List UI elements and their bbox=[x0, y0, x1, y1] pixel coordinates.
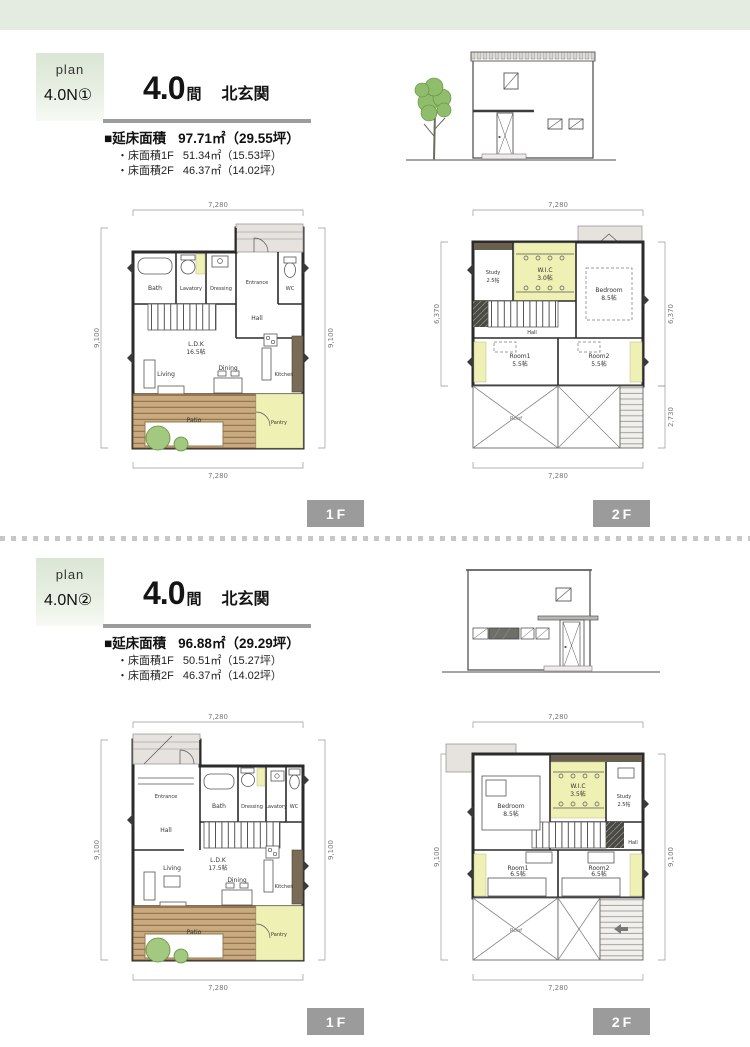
room-label-bath: Bath bbox=[212, 803, 226, 810]
entry-door-icon bbox=[497, 113, 513, 158]
entrance-canopy bbox=[133, 734, 200, 764]
toilet-icon bbox=[290, 775, 300, 789]
floorplan-2f: 7,280 7,280 6,370 6,370 2,730 bbox=[428, 198, 678, 480]
tree-icon bbox=[415, 78, 451, 160]
section-divider bbox=[0, 536, 750, 541]
desk-icon bbox=[618, 768, 634, 778]
room-size-bedroom: 8.5帖 bbox=[503, 810, 519, 818]
plan-title: 4.0 間 北玄関 bbox=[143, 575, 270, 612]
closet-area bbox=[630, 854, 642, 896]
plan-entry-direction: 北玄関 bbox=[222, 585, 270, 609]
plan-badge-word: plan bbox=[36, 53, 104, 77]
stairs bbox=[488, 301, 558, 327]
dim-right: 9,100 bbox=[327, 840, 335, 860]
room-label-room1: Room1 bbox=[510, 353, 531, 360]
dining-table-icon bbox=[222, 890, 252, 905]
living-table-icon bbox=[164, 876, 180, 887]
room-label-kitchen: Kitchen bbox=[275, 884, 294, 890]
dim-top: 7,280 bbox=[548, 201, 568, 209]
entry-steps bbox=[482, 154, 526, 159]
entrance-canopy bbox=[236, 224, 303, 252]
elevation-drawing bbox=[440, 552, 665, 690]
room-size-study: 2.5帖 bbox=[487, 277, 500, 284]
dim-bottom: 7,280 bbox=[548, 472, 568, 480]
floor-tag-2f: 2F bbox=[593, 500, 650, 527]
room-label-wc: WC bbox=[290, 804, 299, 810]
roof-label: Roof bbox=[510, 416, 523, 422]
kitchen-counter bbox=[292, 850, 303, 904]
room-size-ldk: 16.5帖 bbox=[186, 348, 205, 356]
kitchen-counter bbox=[292, 336, 303, 392]
wic-area bbox=[550, 762, 606, 818]
floor1-area: ・床面積1F 51.34㎡（15.53坪） bbox=[117, 147, 282, 163]
floor-tag-2f-text: 2F bbox=[612, 506, 634, 522]
room-size-study: 2.5帖 bbox=[618, 801, 631, 808]
plan-sheet: { "page": { "tags": { "f1": "1F", "f2": … bbox=[0, 0, 750, 1047]
bathtub-icon bbox=[204, 774, 234, 789]
room-label-wc: WC bbox=[286, 286, 295, 292]
room-size-bedroom: 8.5帖 bbox=[601, 294, 617, 302]
total-area-label: ■延床面積 bbox=[104, 127, 166, 147]
washer-icon bbox=[242, 774, 255, 787]
stove-icon bbox=[266, 846, 279, 858]
desk-icon bbox=[588, 852, 614, 863]
roof-label: Roof bbox=[510, 928, 523, 934]
room-label-ldk: L.D.K bbox=[210, 857, 227, 864]
plan-title: 4.0 間 北玄関 bbox=[143, 70, 270, 107]
floor-tag-1f-text: 1F bbox=[326, 506, 348, 522]
dim-bottom: 7,280 bbox=[208, 984, 228, 992]
room-label-lavatory: Lavatory bbox=[180, 286, 202, 292]
kitchen-island bbox=[262, 348, 271, 380]
room-label-bath: Bath bbox=[148, 285, 162, 292]
dim-right-lower: 2,730 bbox=[667, 407, 675, 427]
dim-left: 9,100 bbox=[93, 328, 101, 348]
stair-landing bbox=[606, 822, 624, 848]
closet-area bbox=[474, 854, 486, 896]
floor2-area-value: 46.37㎡（14.02坪） bbox=[183, 667, 282, 683]
plan-size-number: 4.0 bbox=[143, 70, 184, 107]
room-label-study: Study bbox=[617, 794, 631, 800]
dim-left: 9,100 bbox=[93, 840, 101, 860]
room-label-entrance: Entrance bbox=[155, 794, 177, 800]
dim-top: 7,280 bbox=[548, 713, 568, 721]
bathtub-icon bbox=[138, 258, 172, 274]
dim-bottom: 7,280 bbox=[548, 984, 568, 992]
stairs bbox=[148, 304, 216, 330]
floor1-area-label: ・床面積1F bbox=[117, 652, 174, 668]
room-label-kitchen: Kitchen bbox=[275, 372, 294, 378]
floor2-area-label: ・床面積2F bbox=[117, 667, 174, 683]
door-canopy bbox=[538, 616, 598, 620]
total-area-label: ■延床面積 bbox=[104, 632, 166, 652]
closet-area bbox=[474, 342, 486, 382]
room-label-lavatory: Lavatory bbox=[265, 804, 287, 810]
floor2-area-label: ・床面積2F bbox=[117, 162, 174, 178]
page-top-band bbox=[0, 0, 750, 30]
plan-size-unit: 間 bbox=[186, 588, 201, 609]
bed-icon bbox=[488, 878, 546, 896]
plan-badge-word: plan bbox=[36, 558, 104, 582]
room-label-hall: Hall bbox=[160, 827, 172, 834]
shrub-icon bbox=[174, 949, 188, 963]
room-label-dressing: Dressing bbox=[210, 286, 232, 292]
floorplan-2f: 7,280 7,280 9,100 9,100 bbox=[428, 710, 678, 992]
dim-bottom: 7,280 bbox=[208, 472, 228, 480]
roof-zone: Roof bbox=[473, 898, 643, 960]
window-icon bbox=[569, 119, 583, 129]
floor2-area-value: 46.37㎡（14.02坪） bbox=[183, 162, 282, 178]
stairs bbox=[204, 822, 280, 848]
room-label-dressing: Dressing bbox=[241, 804, 263, 810]
sofa-icon bbox=[144, 360, 155, 388]
dim-top: 7,280 bbox=[208, 713, 228, 721]
floor-tag-1f: 1F bbox=[307, 1008, 364, 1035]
window-icon bbox=[504, 73, 518, 89]
floor1-area-value: 50.51㎡（15.27坪） bbox=[183, 652, 282, 668]
room-size-room1: 6.5帖 bbox=[510, 870, 526, 878]
total-area-value: 97.71㎡（29.55坪） bbox=[178, 127, 300, 147]
window-icon bbox=[556, 588, 571, 601]
plan-badge: plan 4.0N② bbox=[36, 558, 104, 626]
room-size-wic: 3.0帖 bbox=[537, 274, 553, 282]
room-label-entrance: Entrance bbox=[246, 280, 268, 286]
elevation-drawing bbox=[398, 40, 623, 178]
laundry-highlight bbox=[257, 768, 265, 786]
stairs bbox=[532, 822, 606, 848]
dim-top: 7,280 bbox=[208, 201, 228, 209]
dim-right: 9,100 bbox=[667, 847, 675, 867]
plan-badge-code: 4.0N① bbox=[36, 85, 104, 105]
room-label-study: Study bbox=[486, 270, 500, 276]
entry-steps bbox=[544, 666, 592, 671]
balcony-hatch bbox=[620, 386, 643, 448]
total-floor-area: ■延床面積 97.71㎡（29.55坪） bbox=[104, 127, 300, 147]
room-label-patio: Patio bbox=[187, 417, 202, 424]
floor2-area: ・床面積2F 46.37㎡（14.02坪） bbox=[117, 162, 282, 178]
toilet-icon bbox=[285, 263, 296, 278]
room-label-pantry: Pantry bbox=[271, 932, 287, 938]
dim-right-upper: 6,370 bbox=[667, 304, 675, 324]
floor2-area: ・床面積2F 46.37㎡（14.02坪） bbox=[117, 667, 282, 683]
floor1-area-label: ・床面積1F bbox=[117, 147, 174, 163]
dim-left: 6,370 bbox=[433, 304, 441, 324]
room-label-hall: Hall bbox=[527, 330, 537, 336]
total-floor-area: ■延床面積 96.88㎡（29.29坪） bbox=[104, 632, 300, 652]
shrub-icon bbox=[146, 938, 170, 962]
title-underline bbox=[103, 624, 311, 628]
window-band bbox=[473, 628, 549, 639]
roof-zone: Roof bbox=[473, 386, 643, 448]
floorplan-1f: 7,280 7,280 9,100 9,100 bbox=[88, 198, 338, 480]
washer-icon bbox=[181, 260, 195, 274]
room-label-bedroom: Bedroom bbox=[595, 287, 622, 294]
stove-icon bbox=[264, 334, 277, 346]
floor1-area: ・床面積1F 50.51㎡（15.27坪） bbox=[117, 652, 282, 668]
floor-tag-1f: 1F bbox=[307, 500, 364, 527]
kitchen-island bbox=[264, 860, 273, 892]
vanity-icon bbox=[212, 256, 228, 267]
room-label-living: Living bbox=[157, 371, 175, 378]
bed-icon bbox=[562, 878, 620, 896]
room-label-wic: W.I.C bbox=[537, 267, 552, 274]
room-label-pantry: Pantry bbox=[271, 420, 287, 426]
plan-badge-code: 4.0N② bbox=[36, 590, 104, 610]
plan-size-unit: 間 bbox=[186, 83, 201, 104]
floor1-area-value: 51.34㎡（15.53坪） bbox=[183, 147, 282, 163]
closet-strip bbox=[474, 243, 513, 250]
room-size-room1: 5.5帖 bbox=[512, 360, 528, 368]
room-label-hall: Hall bbox=[251, 315, 263, 322]
house-front bbox=[471, 52, 595, 159]
floor-tag-2f: 2F bbox=[593, 1008, 650, 1035]
plan-badge: plan 4.0N① bbox=[36, 53, 104, 121]
sofa-icon bbox=[144, 872, 155, 900]
closet-area bbox=[630, 342, 642, 382]
closet-strip bbox=[550, 755, 642, 762]
plan-entry-direction: 北玄関 bbox=[222, 80, 270, 104]
title-underline bbox=[103, 119, 311, 123]
room-size-ldk: 17.5帖 bbox=[208, 864, 227, 872]
window-icon bbox=[548, 119, 562, 129]
room-label-dining: Dining bbox=[227, 877, 247, 884]
parapet-band bbox=[471, 52, 595, 61]
desk-icon bbox=[526, 852, 552, 863]
dim-left: 9,100 bbox=[433, 847, 441, 867]
house-front bbox=[466, 570, 598, 671]
room-size-room2: 5.5帖 bbox=[591, 360, 607, 368]
room-label-dining: Dining bbox=[218, 365, 238, 372]
dim-right: 9,100 bbox=[327, 328, 335, 348]
floor-tag-1f-text: 1F bbox=[326, 1014, 348, 1030]
entry-door-icon bbox=[560, 620, 584, 670]
room-label-patio: Patio bbox=[187, 929, 202, 936]
stair-landing bbox=[473, 301, 488, 327]
room-label-bedroom: Bedroom bbox=[497, 803, 524, 810]
dining-table-icon bbox=[214, 378, 242, 393]
room-label-hall: Hall bbox=[628, 840, 638, 846]
vanity-icon bbox=[271, 771, 284, 781]
total-area-value: 96.88㎡（29.29坪） bbox=[178, 632, 300, 652]
room-label-ldk: L.D.K bbox=[188, 341, 205, 348]
plan-size-number: 4.0 bbox=[143, 575, 184, 612]
shrub-icon bbox=[146, 426, 170, 450]
floor-tag-2f-text: 2F bbox=[612, 1014, 634, 1030]
laundry-highlight bbox=[196, 254, 205, 274]
room-size-wic: 3.5帖 bbox=[570, 790, 586, 798]
shrub-icon bbox=[174, 437, 188, 451]
room-label-room2: Room2 bbox=[589, 353, 610, 360]
room-label-wic: W.I.C bbox=[570, 783, 585, 790]
room-size-room2: 6.5帖 bbox=[591, 870, 607, 878]
floorplan-1f: 7,280 7,280 9,100 9,100 bbox=[88, 710, 338, 992]
room-label-living: Living bbox=[163, 865, 181, 872]
